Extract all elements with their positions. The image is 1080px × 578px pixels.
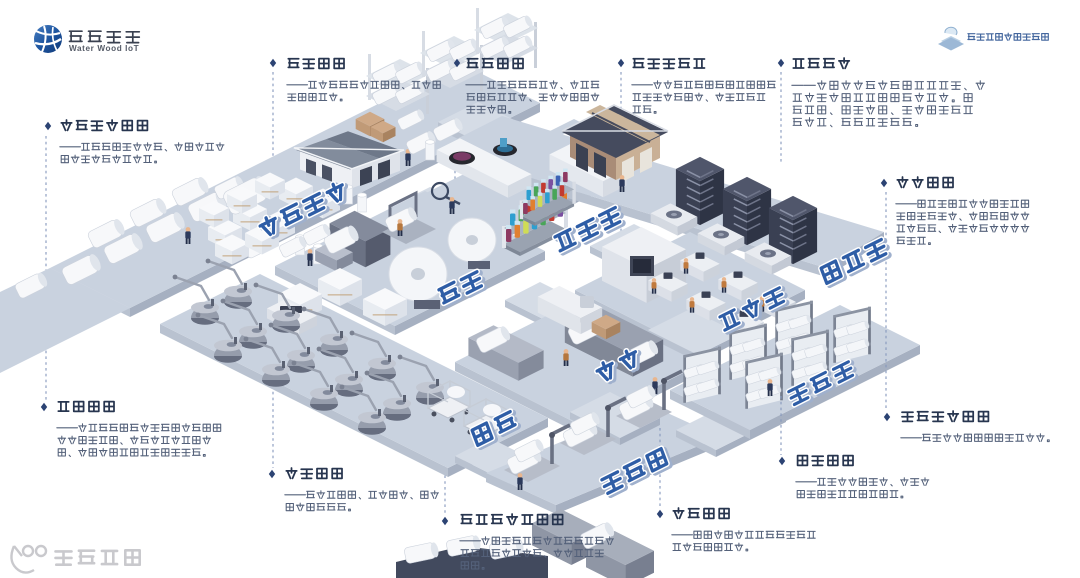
svg-text:Water Wood IoT: Water Wood IoT	[69, 44, 139, 53]
